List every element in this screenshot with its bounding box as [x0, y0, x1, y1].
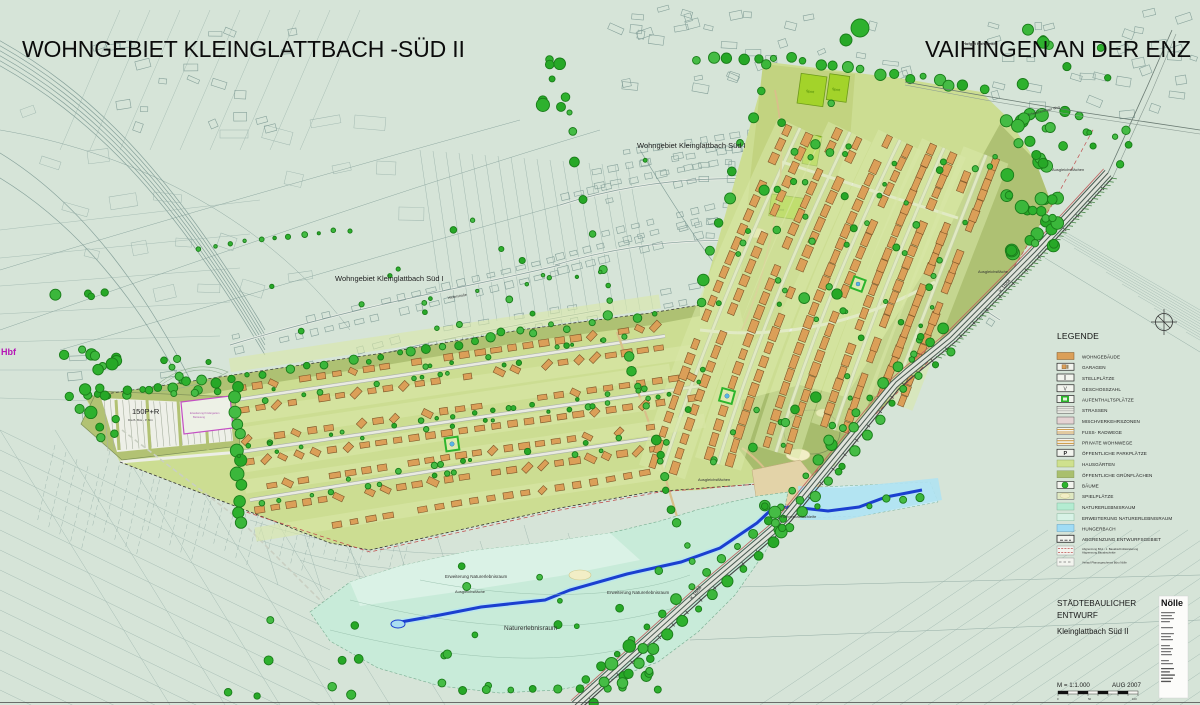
svg-text:ENTWURF: ENTWURF [1057, 611, 1098, 620]
svg-text:STÄDTEBAULICHER: STÄDTEBAULICHER [1057, 598, 1136, 608]
svg-text:Naturerlebnisraum: Naturerlebnisraum [504, 625, 557, 632]
svg-text:HUNGERBACH: HUNGERBACH [1082, 527, 1116, 532]
svg-text:Hbf: Hbf [1, 347, 17, 357]
svg-text:Hungerbachschleife: Hungerbachschleife [781, 514, 817, 519]
svg-text:Erweiterung Naturerlebnisraum: Erweiterung Naturerlebnisraum [445, 574, 508, 579]
svg-text:Ausgleichsfläche: Ausgleichsfläche [455, 589, 486, 594]
svg-text:Abgrenzung Bauabschnitte: Abgrenzung Bauabschnitte [1082, 551, 1116, 555]
svg-text:HAUSGÄRTEN: HAUSGÄRTEN [1082, 461, 1115, 467]
svg-text:SPIELPLÄTZE: SPIELPLÄTZE [1082, 493, 1113, 499]
svg-text:P: P [1064, 451, 1068, 457]
svg-text:M = 1:1.000: M = 1:1.000 [1057, 682, 1090, 689]
svg-text:WOHNGEBIET KLEINGLATTBACH -SÜ: WOHNGEBIET KLEINGLATTBACH -SÜD II [22, 36, 465, 62]
svg-text:ÖFFENTLICHE GRÜNFLÄCHEN: ÖFFENTLICHE GRÜNFLÄCHEN [1082, 472, 1152, 478]
svg-text:150P+R: 150P+R [132, 407, 160, 416]
svg-text:ERWEITERUNG NATURERLEBNISRAUM: ERWEITERUNG NATURERLEBNISRAUM [1082, 516, 1172, 521]
svg-text:Hofgut Hohstette: Hofgut Hohstette [963, 41, 996, 46]
svg-text:50: 50 [1088, 697, 1092, 701]
svg-text:Verlauf Planungsschema Büro Nö: Verlauf Planungsschema Büro Nölle [1082, 561, 1127, 565]
svg-text:GESCHOSSZAHL: GESCHOSSZAHL [1082, 387, 1121, 392]
svg-text:Erweiterung Kindergarten: Erweiterung Kindergarten [190, 411, 220, 415]
svg-text:FUSS- RADWEGE: FUSS- RADWEGE [1082, 430, 1122, 435]
svg-text:ABGRENZUNG ENTWURFSGEBIET: ABGRENZUNG ENTWURFSGEBIET [1082, 537, 1161, 542]
svg-text:AUG 2007: AUG 2007 [1112, 682, 1141, 689]
svg-text:WOHNGEBÄUDE: WOHNGEBÄUDE [1082, 354, 1120, 360]
svg-text:PRIVATE WOHNWEGE: PRIVATE WOHNWEGE [1082, 441, 1132, 446]
svg-text:Ausgleichsflächen: Ausgleichsflächen [698, 477, 730, 482]
svg-text:Kleinglattbach Süd II: Kleinglattbach Süd II [1057, 627, 1129, 636]
svg-text:STELLPLÄTZE: STELLPLÄTZE [1082, 375, 1115, 381]
svg-text:Ausgleichsflächen: Ausgleichsflächen [1052, 167, 1084, 172]
svg-text:Wohngebiet Kleinglattbach Süd: Wohngebiet Kleinglattbach Süd I [637, 141, 746, 150]
svg-text:Erweiterung Naturerlebnisraum: Erweiterung Naturerlebnisraum [607, 590, 670, 595]
svg-text:STRASSEN: STRASSEN [1082, 408, 1108, 413]
svg-text:LEGENDE: LEGENDE [1057, 331, 1099, 341]
svg-text:NATURERLEBNISRAUM: NATURERLEBNISRAUM [1082, 505, 1136, 510]
svg-text:MISCHVERKEHRSZONEN: MISCHVERKEHRSZONEN [1082, 419, 1140, 424]
svg-text:Ausgleichsfläche: Ausgleichsfläche [978, 269, 1009, 274]
svg-text:100: 100 [1132, 697, 1137, 701]
svg-text:Betreuung: Betreuung [193, 415, 206, 419]
svg-text:ÖFFENTLICHE PARKPLÄTZE: ÖFFENTLICHE PARKPLÄTZE [1082, 450, 1147, 456]
svg-text:Nölle: Nölle [1161, 598, 1183, 608]
svg-text:GARAGEN: GARAGEN [1082, 365, 1106, 370]
svg-text:AUFENTHALTSPLÄTZE: AUFENTHALTSPLÄTZE [1082, 397, 1134, 403]
svg-text:VAIHINGEN AN DER ENZ: VAIHINGEN AN DER ENZ [925, 36, 1191, 62]
svg-text:Dia B. Büs - P. Nrn: Dia B. Büs - P. Nrn [128, 418, 153, 422]
svg-text:BÄUME: BÄUME [1082, 483, 1099, 489]
svg-text:Wohngebiet Kleinglattbach Süd: Wohngebiet Kleinglattbach Süd I [335, 274, 444, 283]
